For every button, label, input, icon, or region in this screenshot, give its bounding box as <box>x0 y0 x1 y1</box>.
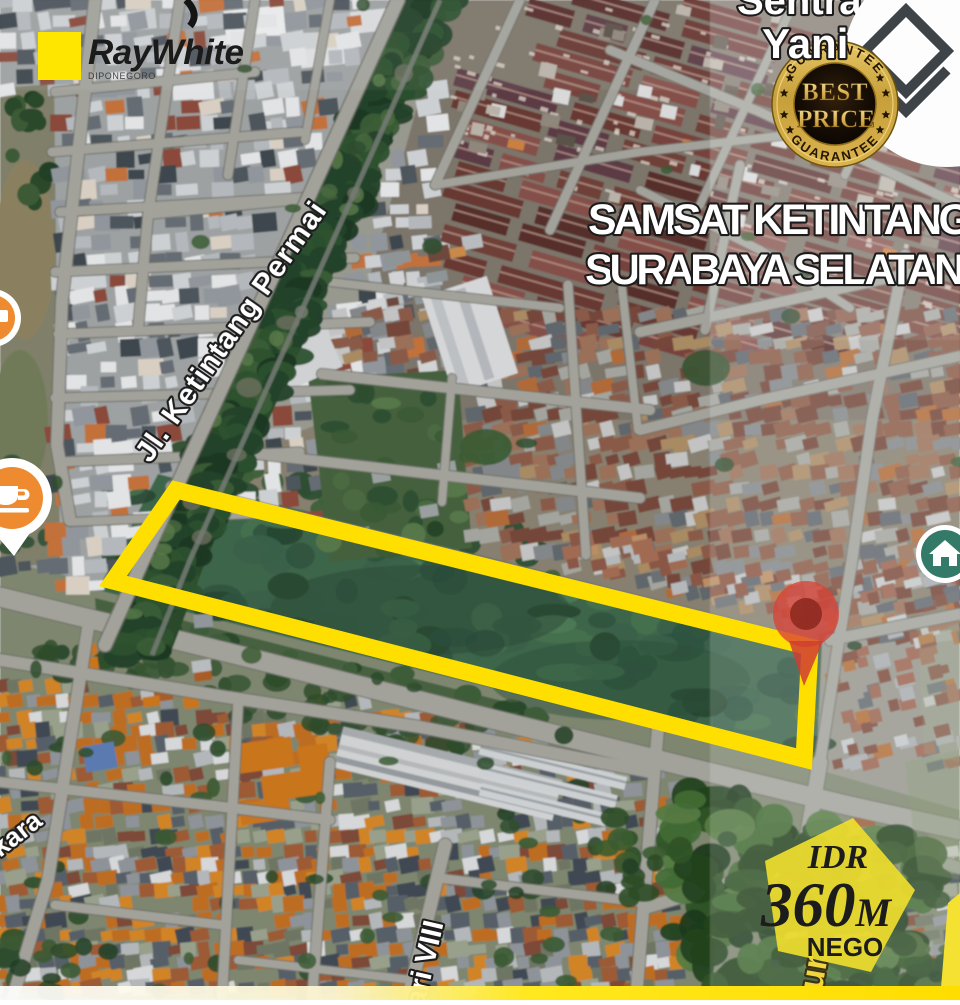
svg-text:SAMSAT KETINTANG: SAMSAT KETINTANG <box>588 196 960 244</box>
svg-text:Yani: Yani <box>762 20 848 67</box>
svg-text:RayWhite: RayWhite <box>88 33 244 72</box>
svg-text:PRICE: PRICE <box>797 106 875 133</box>
svg-text:BEST: BEST <box>802 79 868 106</box>
svg-text:SURABAYA SELATAN: SURABAYA SELATAN <box>585 246 960 294</box>
svg-text:NEGO: NEGO <box>807 932 884 962</box>
svg-text:DIPONEGORO: DIPONEGORO <box>88 71 156 81</box>
